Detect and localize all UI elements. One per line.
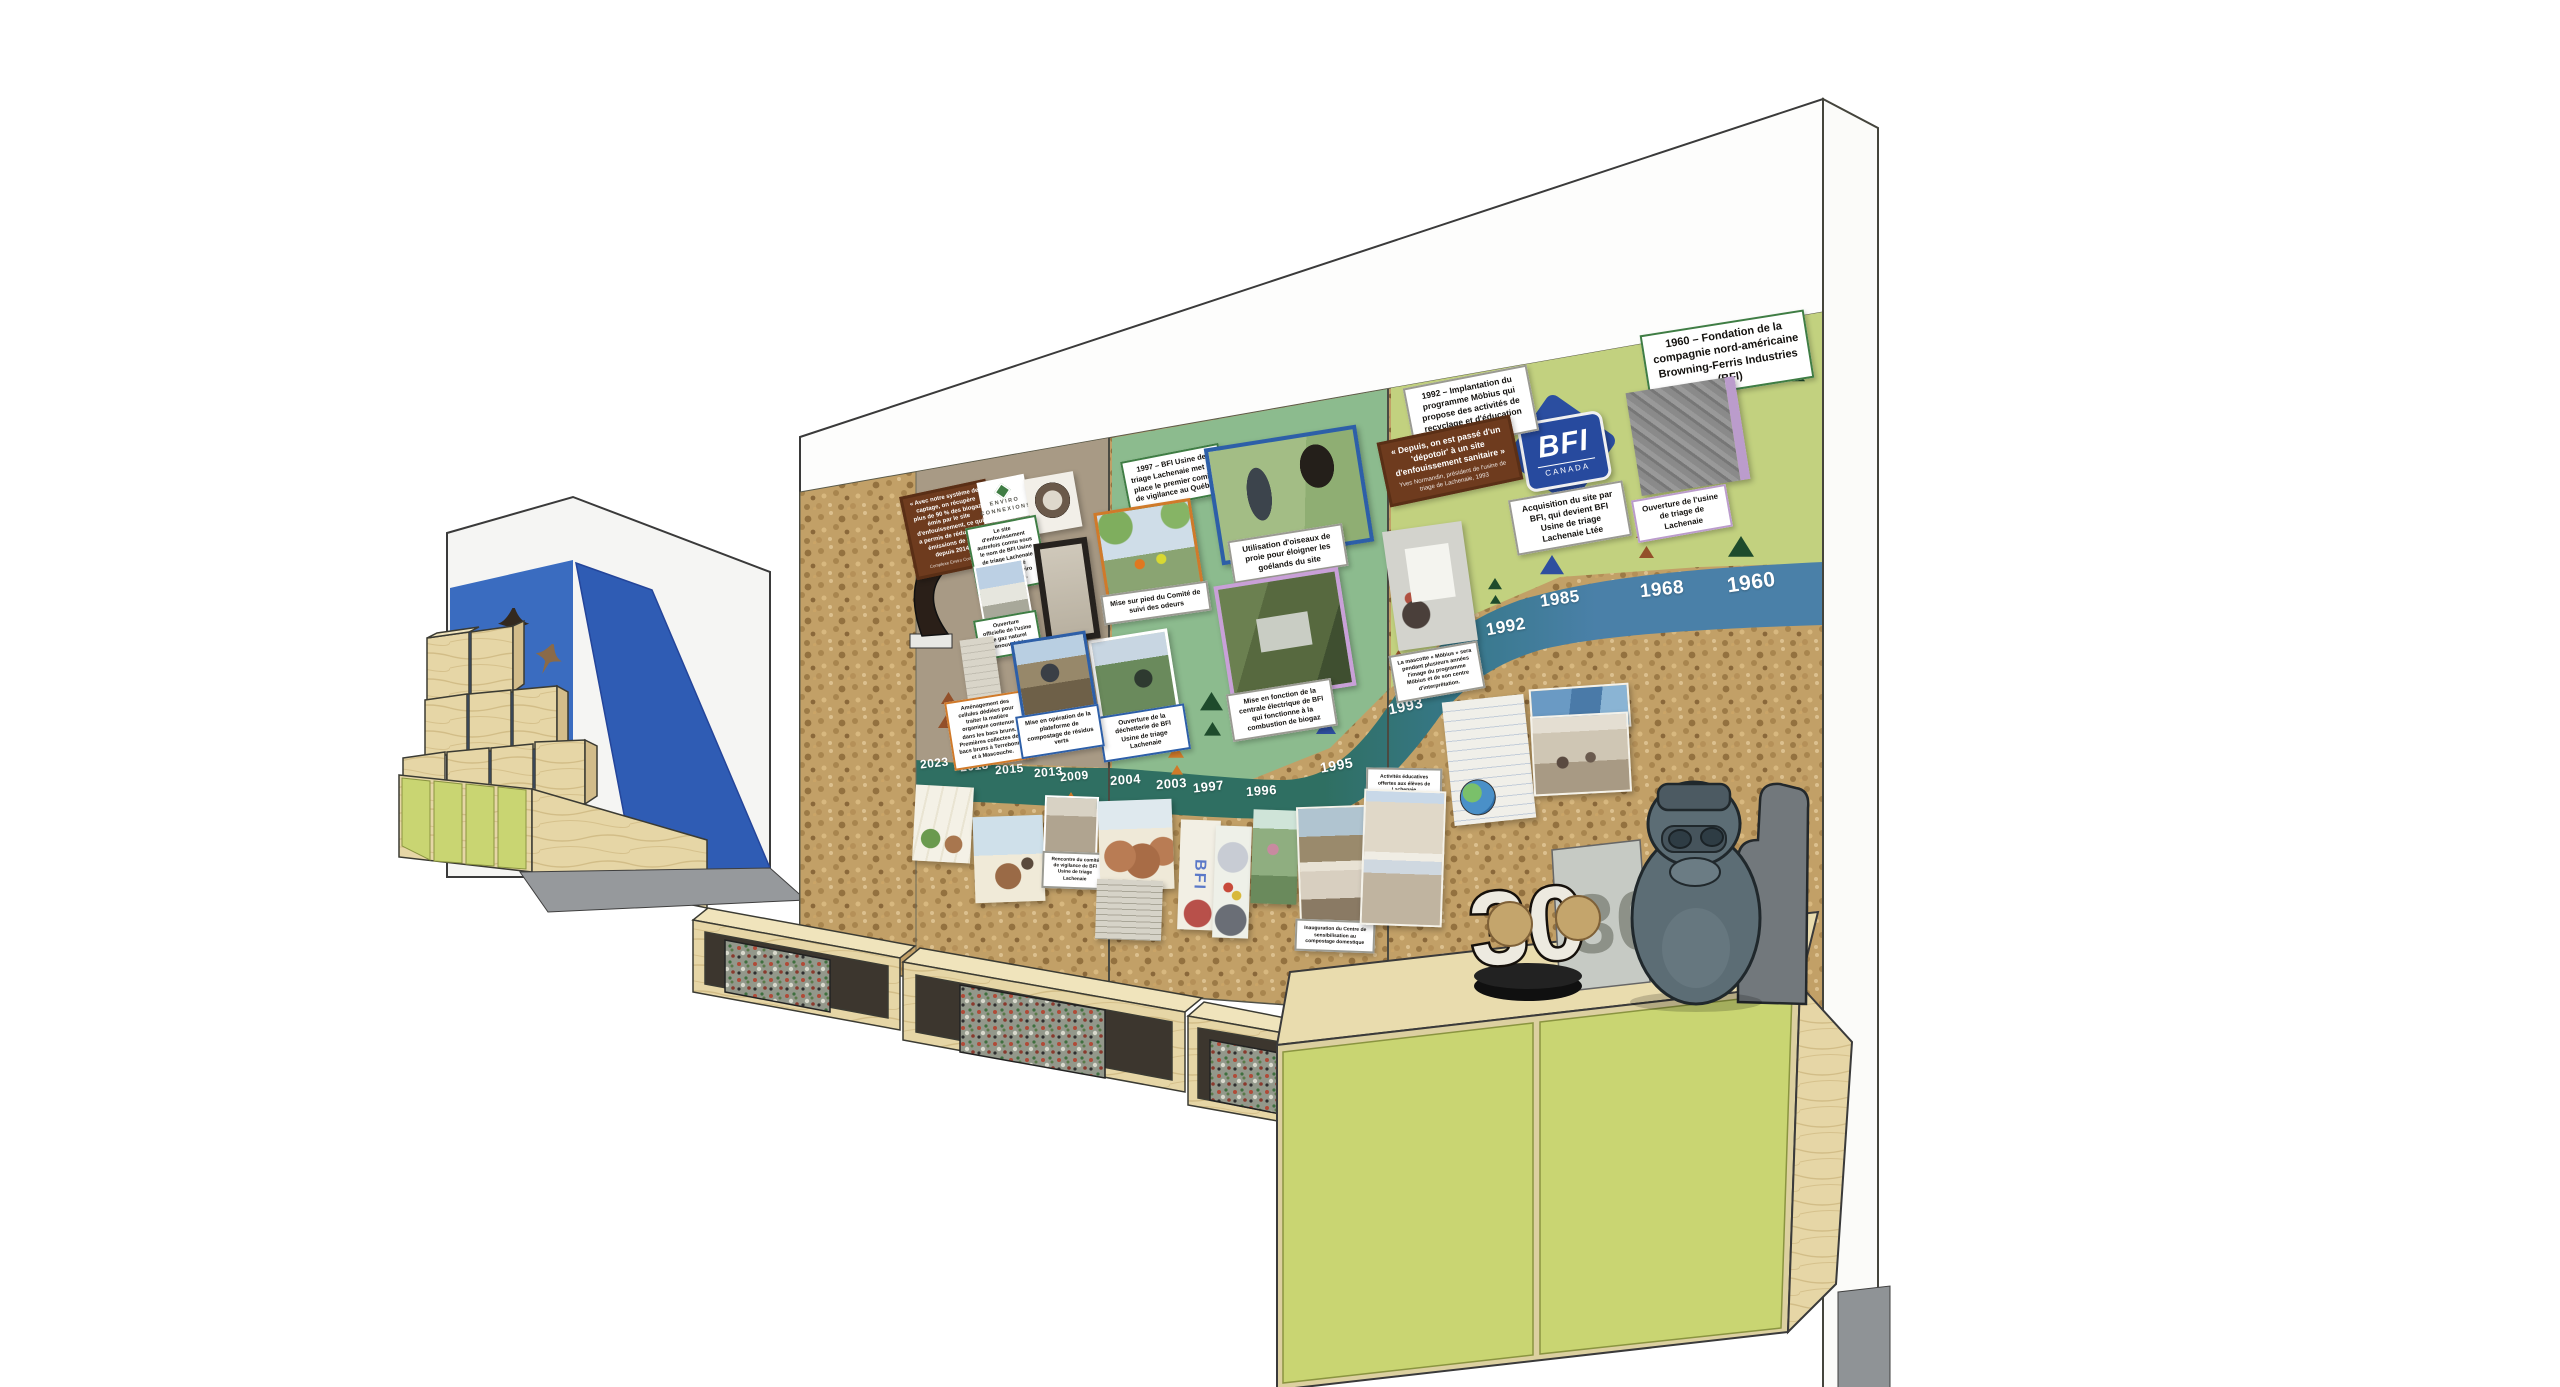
timeline-year: 1996 [1246, 782, 1278, 799]
child-drawing [912, 785, 974, 864]
timeline-year: 1997 [1192, 777, 1224, 795]
aerial-photo-1960 [1626, 376, 1751, 496]
timeline-year: 2023 [919, 755, 949, 772]
framed-certificate [1033, 537, 1101, 646]
classroom-photo [1530, 711, 1632, 796]
child-drawing [1097, 799, 1174, 892]
timeline-year: 1985 [1539, 586, 1581, 611]
timeline-year: 2003 [1156, 775, 1188, 792]
exhibit-render-scene: 30 30 2023 2018 2015 2013 2009 2004 2003… [0, 0, 2560, 1387]
outdoor-activity-photo [1250, 809, 1299, 905]
quote-depotoir-panel: « Depuis, on est passé d'un 'dépotoir' à… [1377, 415, 1524, 508]
classroom-photos [1360, 789, 1447, 928]
typed-document [1095, 879, 1163, 941]
drawing-letters: BFI [1189, 859, 1208, 891]
child-drawing [1212, 825, 1252, 938]
mascot-photo-collage [1382, 521, 1478, 651]
earth-drawing-icon [1458, 778, 1498, 818]
timeline-year: 2004 [1110, 771, 1142, 788]
timeline-year: 1992 [1485, 614, 1528, 641]
handwritten-letter [1442, 694, 1537, 826]
enviro-diamond-icon [994, 483, 1011, 500]
timeline-year: 2009 [1059, 768, 1089, 784]
archive-photos [1296, 805, 1370, 927]
timeline-year: 1960 [1726, 568, 1778, 599]
bfi-logo-text: BFI [1535, 425, 1591, 463]
timeline-year: 1995 [1319, 754, 1354, 776]
wall-graphics-overlay: 2023 2018 2015 2013 2009 2004 2003 1997 … [0, 0, 2560, 1387]
child-drawing [973, 815, 1046, 903]
timeline-year: 1968 [1639, 577, 1685, 604]
